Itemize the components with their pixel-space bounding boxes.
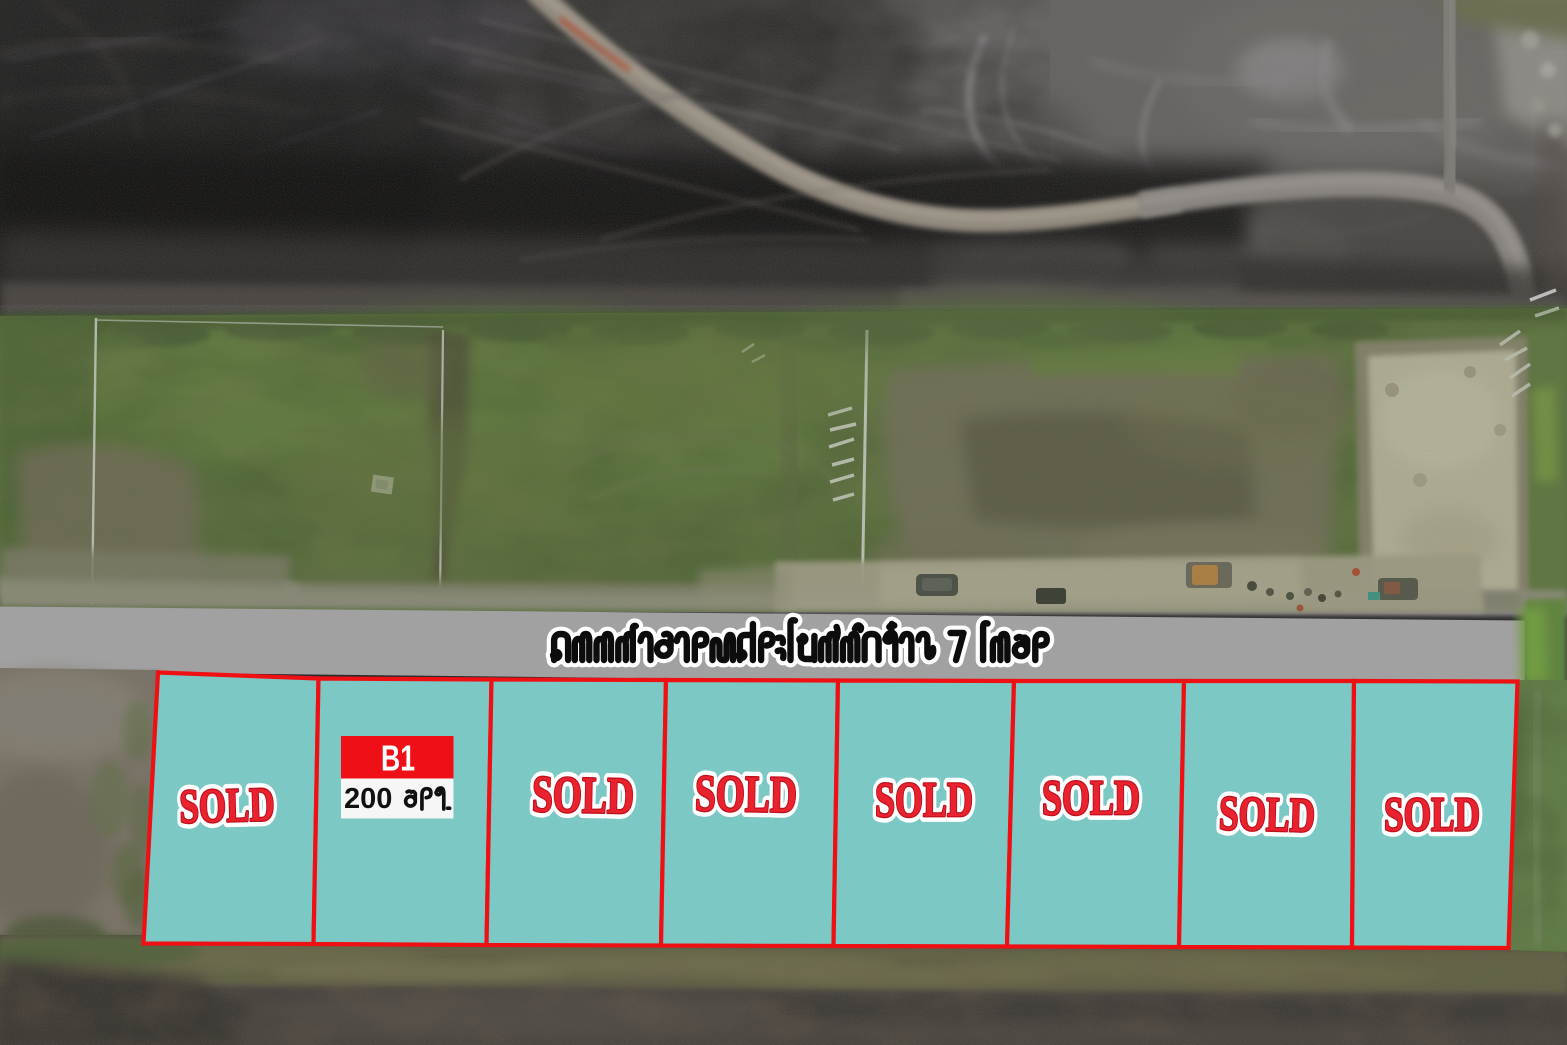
svg-text:SOLD: SOLD [875,772,973,827]
svg-text:SOLD: SOLD [695,764,798,823]
svg-text:SOLD: SOLD [1218,787,1315,843]
svg-text:B1: B1 [381,738,415,779]
svg-text:200: 200 [344,783,392,815]
svg-text:SOLD: SOLD [1384,788,1480,842]
svg-text:SOLD: SOLD [531,765,634,825]
svg-text:SOLD: SOLD [179,778,275,834]
svg-text:SOLD: SOLD [1042,770,1140,825]
